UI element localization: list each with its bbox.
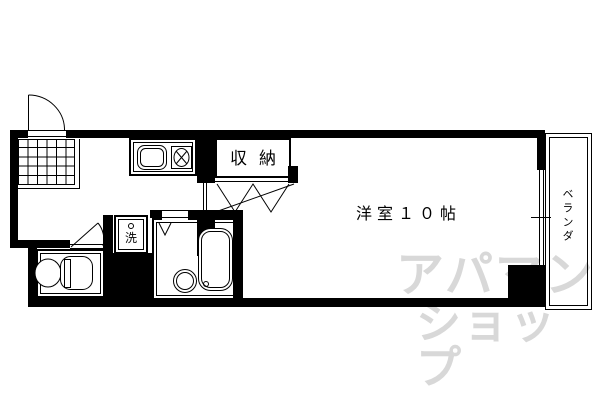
- entrance-door-icon: [29, 95, 65, 131]
- wall-kitchen-closet-block: [197, 130, 215, 183]
- floor-plan: アパマン ショップ 収納 洗 ベラン: [0, 0, 600, 400]
- closet-track-line: [215, 181, 289, 182]
- main-room-label: 洋室１０帖: [356, 207, 461, 223]
- closet: 収納: [215, 138, 291, 178]
- wall-bath-right: [233, 210, 243, 298]
- kitchen-counter-inner: [133, 142, 193, 172]
- genkan-step-line-right: [79, 139, 80, 188]
- wall-closet-corner: [288, 166, 298, 183]
- entrance-frame-line-top: [28, 130, 66, 131]
- washing-machine-pan-inner: 洗: [118, 219, 144, 250]
- veranda-label: ベランダ: [561, 188, 572, 244]
- wall-washer-left: [103, 215, 113, 255]
- wall-below-washer: [103, 253, 152, 298]
- toilet-door-threshold-b: [70, 248, 103, 249]
- wall-bottom: [28, 298, 508, 307]
- toilet-door-threshold-a: [70, 244, 103, 245]
- watermark-line2: ショップ: [416, 300, 600, 390]
- closet-label: 収納: [218, 150, 288, 167]
- window-line-inner: [543, 170, 544, 266]
- wall-top-main: [66, 130, 545, 138]
- washer-faucet-icon: [128, 223, 134, 229]
- wall-hall-toilet: [10, 240, 70, 248]
- closet-bifold-door-icon: [217, 184, 289, 212]
- genkan-tile-grid: [18, 139, 75, 185]
- entrance-frame-line-bottom: [28, 136, 66, 137]
- bathroom-door-line-top: [162, 210, 188, 211]
- wall-left: [10, 130, 18, 248]
- wall-pillar-bottom-right: [508, 265, 545, 307]
- genkan-step-line-bottom: [18, 188, 80, 189]
- bathroom-door-line-bottom: [162, 217, 188, 218]
- toilet-room-inner: [40, 253, 101, 294]
- wall-right-top: [537, 130, 545, 170]
- window-sash-tick: [531, 217, 551, 218]
- window-line-outer: [539, 170, 540, 266]
- wall-room-door-lower: [197, 216, 215, 256]
- washer-label: 洗: [125, 232, 137, 244]
